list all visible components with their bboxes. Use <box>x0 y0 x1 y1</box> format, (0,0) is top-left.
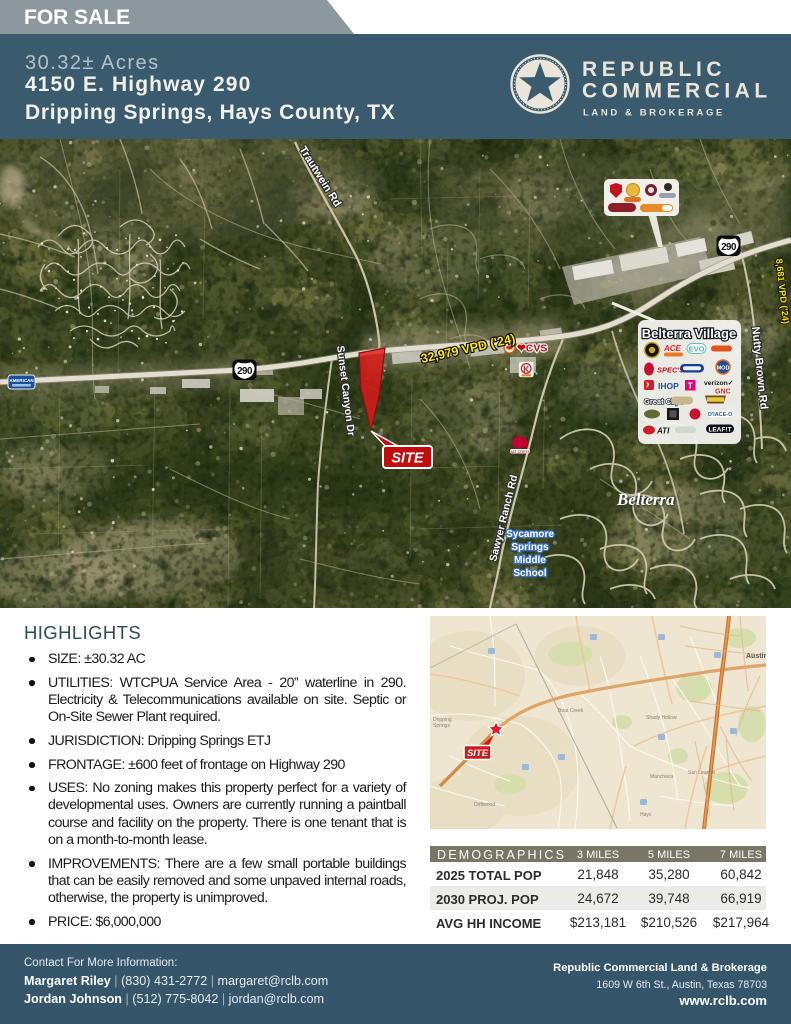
svg-text:HAT CREEK: HAT CREEK <box>509 450 531 454</box>
svg-text:verizon✓: verizon✓ <box>704 380 734 387</box>
svg-text:San Leanna: San Leanna <box>688 770 715 776</box>
svg-text:Shady Hollow: Shady Hollow <box>646 715 677 721</box>
svg-text:290: 290 <box>237 366 253 377</box>
svg-text:ACE: ACE <box>663 344 682 353</box>
svg-text:T: T <box>688 381 694 391</box>
svg-text:Hays: Hays <box>640 812 652 818</box>
svg-text:K: K <box>523 364 530 374</box>
svg-text:290: 290 <box>721 242 737 253</box>
svg-text:ATI: ATI <box>656 427 670 436</box>
svg-text:GNC: GNC <box>715 389 731 396</box>
svg-text:Austin: Austin <box>746 653 766 660</box>
svg-text:Middle: Middle <box>514 555 546 566</box>
svg-text:Sycamore: Sycamore <box>506 529 554 540</box>
svg-text:AMERICAN: AMERICAN <box>9 378 33 383</box>
svg-text:Belterra Village: Belterra Village <box>642 326 736 341</box>
svg-text:COMMERCIAL: COMMERCIAL <box>582 80 772 103</box>
svg-text:MOD: MOD <box>717 366 730 372</box>
svg-text:Driftwood: Driftwood <box>474 802 495 808</box>
svg-text:Springs: Springs <box>433 723 450 729</box>
svg-text:SITE: SITE <box>391 451 425 467</box>
svg-text:REPUBLIC: REPUBLIC <box>582 58 726 81</box>
svg-text:Bear Creek: Bear Creek <box>558 708 584 714</box>
svg-text:IHOP: IHOP <box>658 381 679 391</box>
svg-text:LAND & BROKERAGE: LAND & BROKERAGE <box>583 108 725 119</box>
svg-text:Belterra: Belterra <box>616 490 675 509</box>
svg-text:O'IACE-O: O'IACE-O <box>708 412 734 418</box>
svg-text:School: School <box>513 568 547 579</box>
svg-text:SITE: SITE <box>467 748 489 759</box>
svg-text:EVO: EVO <box>689 344 705 353</box>
svg-text:❤CVS: ❤CVS <box>517 343 547 355</box>
svg-text:Manchaca: Manchaca <box>650 774 673 780</box>
svg-text:Springs: Springs <box>511 542 549 553</box>
svg-text:LEAF!T: LEAF!T <box>708 426 731 433</box>
svg-text:SPEC'S: SPEC'S <box>657 366 684 375</box>
